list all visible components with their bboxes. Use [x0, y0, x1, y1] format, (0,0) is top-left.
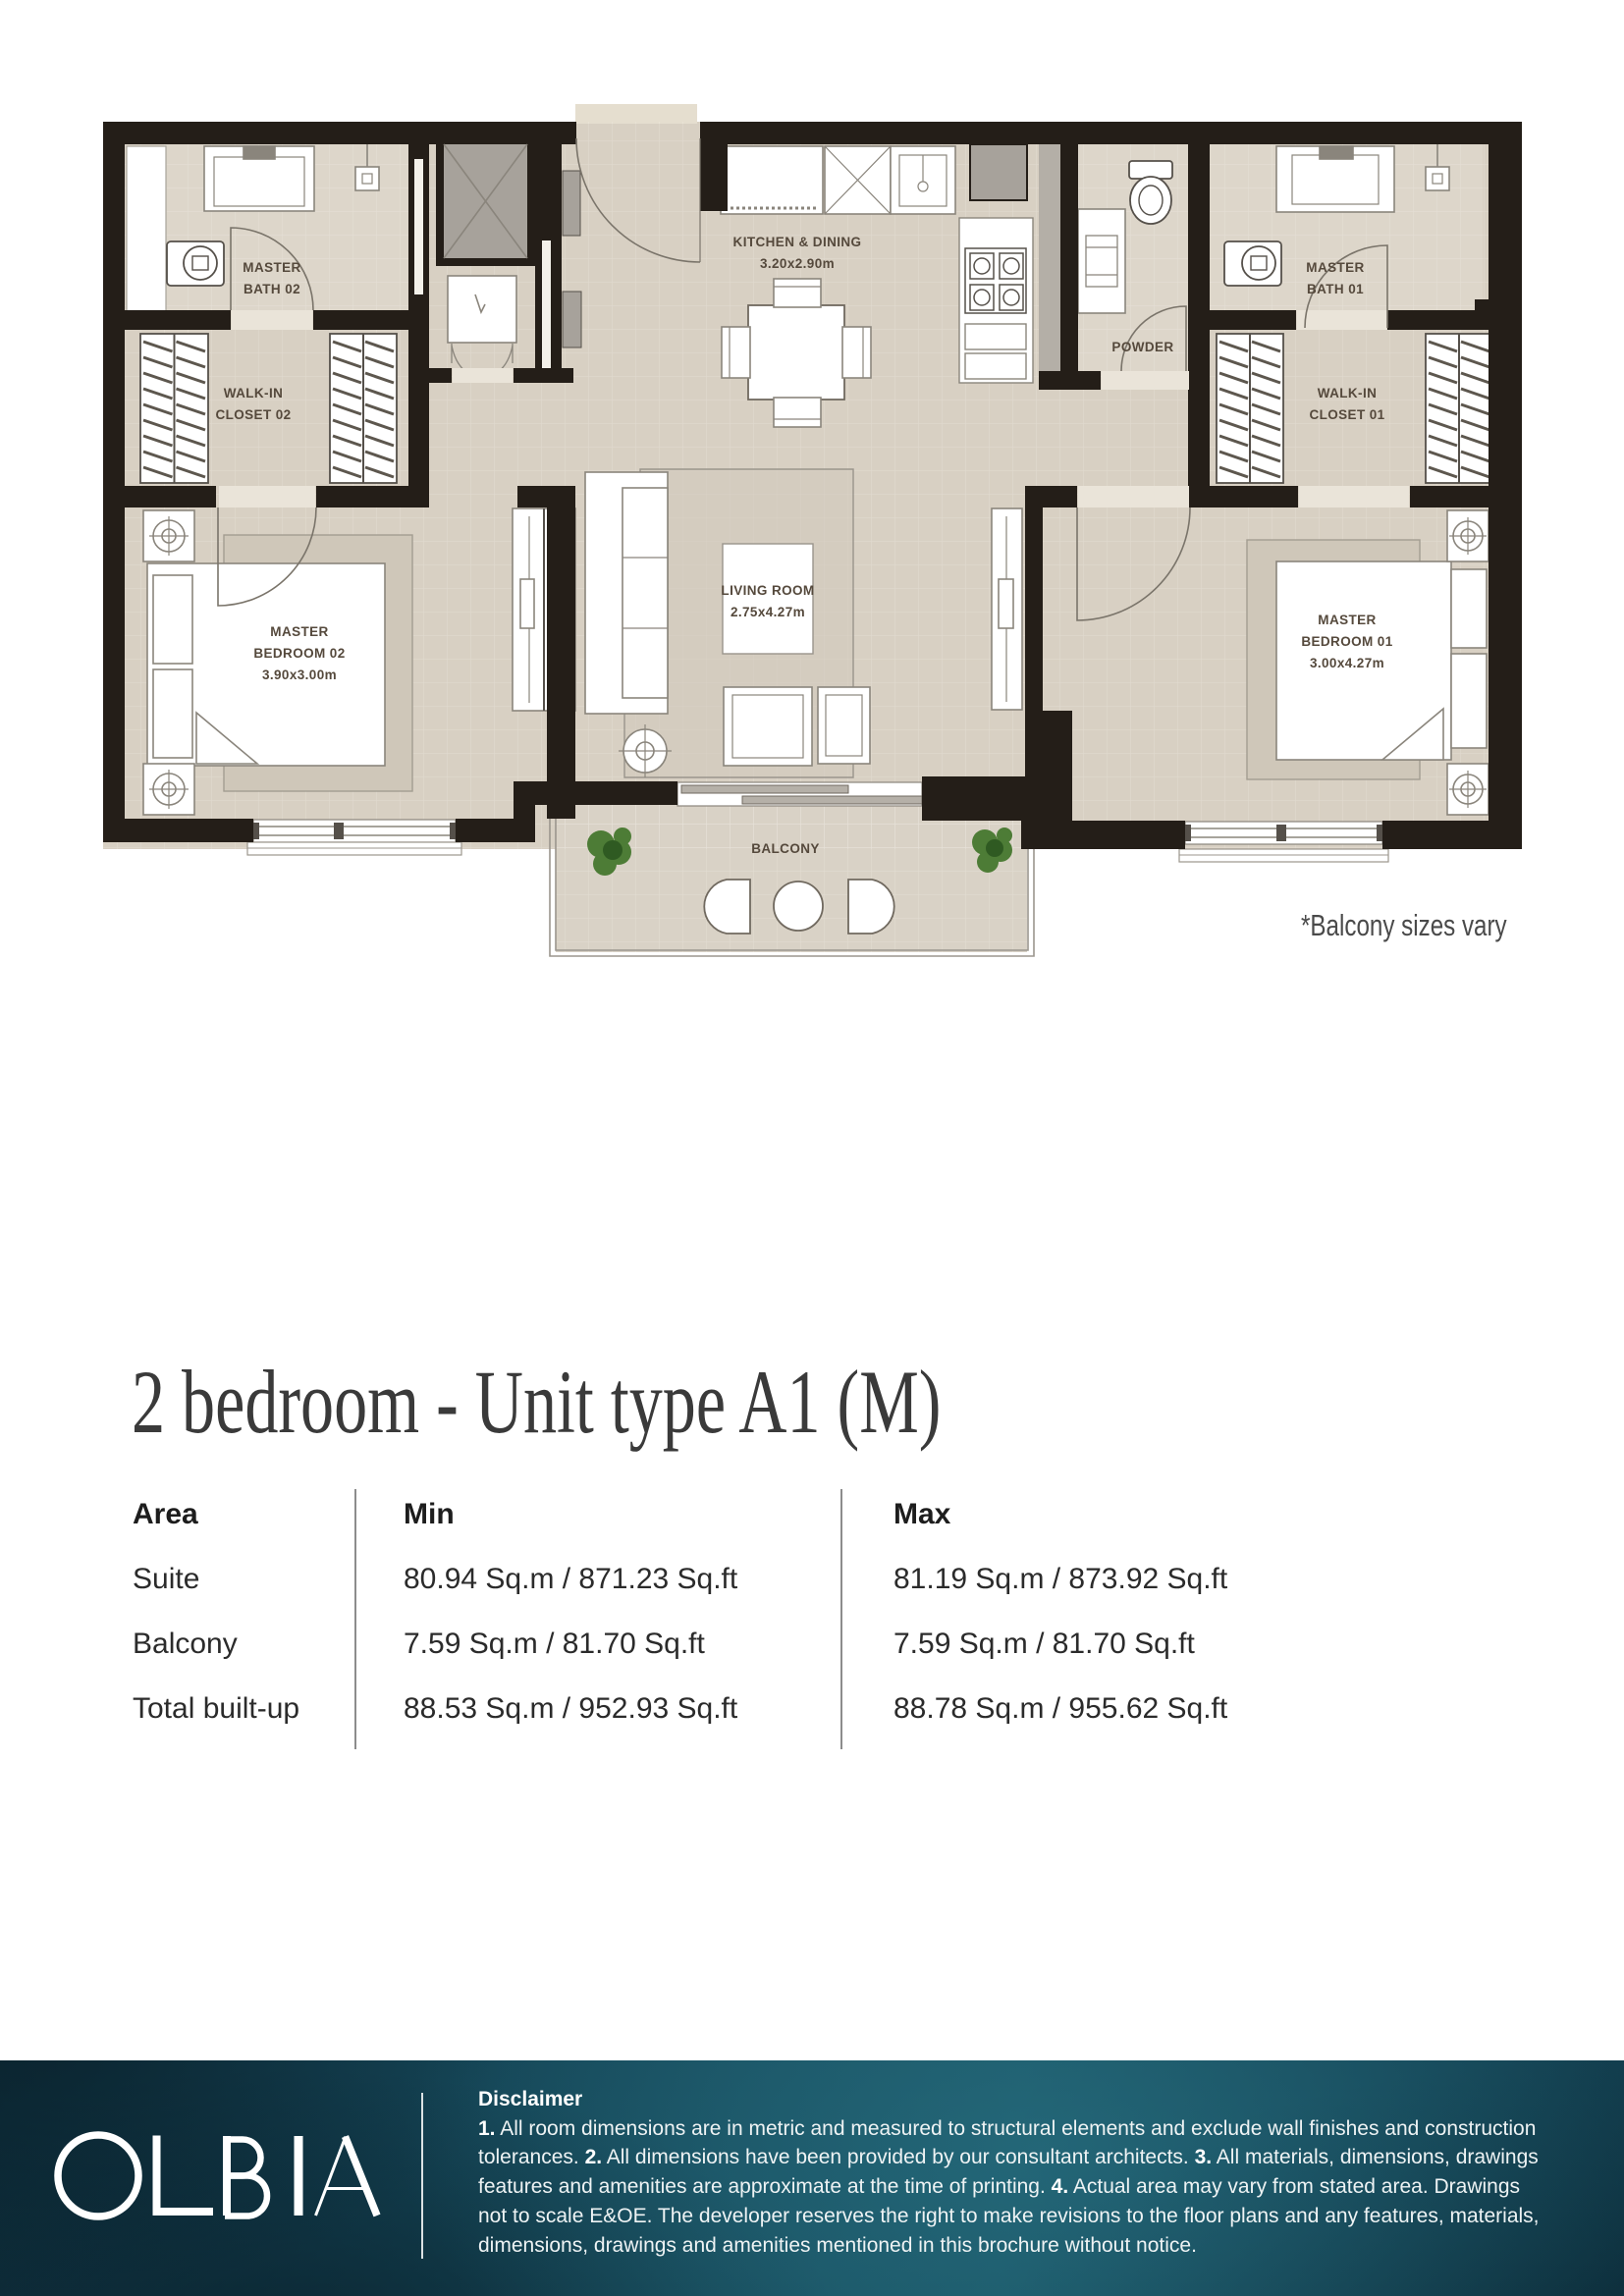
- svg-text:BALCONY: BALCONY: [751, 841, 820, 856]
- svg-text:MASTER: MASTER: [270, 624, 328, 639]
- svg-text:WALK-IN: WALK-IN: [1318, 386, 1378, 400]
- svg-text:BATH 02: BATH 02: [244, 282, 300, 296]
- svg-text:CLOSET 01: CLOSET 01: [1309, 407, 1384, 422]
- svg-text:3.00x4.27m: 3.00x4.27m: [1310, 656, 1384, 670]
- svg-text:2.75x4.27m: 2.75x4.27m: [731, 605, 805, 619]
- svg-text:3.20x2.90m: 3.20x2.90m: [760, 256, 835, 271]
- svg-text:WALK-IN: WALK-IN: [224, 386, 284, 400]
- svg-text:KITCHEN & DINING: KITCHEN & DINING: [733, 235, 862, 249]
- svg-text:MASTER: MASTER: [243, 260, 300, 275]
- svg-text:CLOSET 02: CLOSET 02: [215, 407, 291, 422]
- svg-text:MASTER: MASTER: [1318, 613, 1376, 627]
- svg-text:BEDROOM 01: BEDROOM 01: [1301, 634, 1392, 649]
- svg-text:LIVING ROOM: LIVING ROOM: [721, 583, 814, 598]
- svg-text:BATH 01: BATH 01: [1307, 282, 1364, 296]
- svg-text:MASTER: MASTER: [1306, 260, 1364, 275]
- svg-text:3.90x3.00m: 3.90x3.00m: [262, 667, 337, 682]
- svg-text:POWDER: POWDER: [1111, 340, 1173, 354]
- svg-text:BEDROOM 02: BEDROOM 02: [253, 646, 345, 661]
